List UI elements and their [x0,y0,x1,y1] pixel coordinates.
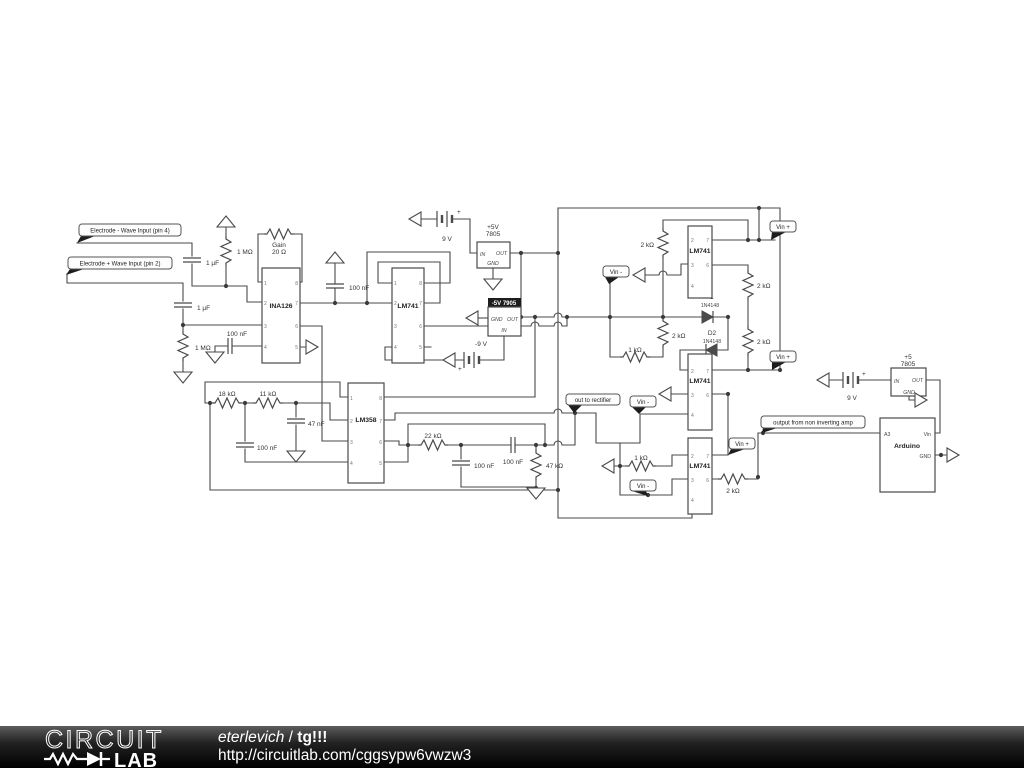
flag-label: output from non inverting amp [773,421,853,427]
pin-number: 4 [394,345,397,351]
lm741-ic-4[interactable]: LM741 2 7 3 6 4 [688,438,712,514]
value-label: 9 V [442,236,452,243]
pin-number: 2 [691,369,694,375]
cap-100nf-supply[interactable]: 100 nF [326,252,369,292]
terminal-arrow-icon [306,340,318,354]
ground-icon [206,352,224,363]
lm741-ic-3[interactable]: LM741 2 7 3 6 4 [688,354,712,430]
value-label: 1 kΩ [634,455,648,462]
pin-number: 6 [706,263,709,269]
ic-name: LM741 [689,248,710,255]
gnd-pin-label: GND [903,390,915,396]
value-label: 2 kΩ [757,283,771,290]
credit-separator: / [289,729,293,746]
flag-electrode-minus[interactable]: Electrode - Wave Input (pin 4) [77,224,181,243]
project-title[interactable]: tg!!! [297,729,327,746]
out-pin-label: OUT [912,378,924,384]
ground-icon [174,372,192,383]
cap-100nf-series[interactable]: 100 nF [503,437,523,466]
terminal-arrow-icon [633,268,645,282]
pin-number: 8 [419,281,422,287]
out-pin-label: OUT [496,251,508,257]
pin-number: 7 [295,301,298,307]
value-label: 47 kΩ [546,463,563,470]
pin-number: 7 [706,238,709,244]
logo-text-lab: LAB [114,750,158,768]
pin-number: 3 [691,393,694,399]
footer-bar: CIRCUIT LAB eterlevich / tg!!! http://ci… [0,726,1024,768]
value-label: 100 nF [503,459,523,466]
pin-number: 4 [691,498,694,504]
flag-vin-minus-3[interactable]: Vin - [630,480,656,496]
terminal-arrow-icon [409,212,421,226]
resistor-1k-a[interactable]: 1 kΩ [620,347,650,362]
pin-number: 1 [350,396,353,402]
plus-label: + [457,209,461,216]
project-url[interactable]: http://circuitlab.com/cggsypw6vwzw3 [218,747,471,765]
flag-label: Electrode + Wave Input (pin 2) [80,262,161,268]
logo-resistor-diode-icon [44,752,110,766]
pin-number: 1 [264,281,267,287]
circuitlab-page: 1 MΩ 1 µF 1 µF 1 MΩ 100 nF Gain 20 Ω 100… [0,0,1024,768]
schematic-canvas[interactable]: 1 MΩ 1 µF 1 µF 1 MΩ 100 nF Gain 20 Ω 100… [0,0,1024,726]
cap-100nf-bias[interactable]: 100 nF [236,443,277,452]
pin-number: 2 [394,301,397,307]
regulator-7905[interactable]: -5V 7905 GND OUT IN [466,298,521,336]
flag-output-noninverting[interactable]: output from non inverting amp [761,416,865,433]
resistor-2k-e[interactable]: 2 kΩ [658,318,686,348]
plus-label: + [862,371,866,378]
pin-number: 3 [350,440,353,446]
reg-title: -5V 7905 [492,301,517,307]
value-label: 2 kΩ [757,339,771,346]
ic-name: INA126 [269,303,292,310]
flag-label: Vin + [776,355,790,361]
ref-label: D2 [708,330,717,337]
pin-number: 7 [706,369,709,375]
pin-number: 2 [350,419,353,425]
part-label: 1N4148 [703,339,721,345]
pin-number: 4 [350,461,353,467]
pin-number: 4 [691,284,694,290]
pin-number: 6 [295,324,298,330]
lm741-ic-2[interactable]: LM741 2 7 3 6 4 [688,226,712,298]
terminal-arrow-icon [466,311,478,325]
value-label: 47 nF [308,421,325,428]
cap-1uf-b[interactable]: 1 µF [174,303,210,312]
resistor-1meg-a[interactable]: 1 MΩ [217,216,253,266]
ic-name: LM741 [689,378,710,385]
value-label: 1 MΩ [195,345,211,352]
value-label: 22 kΩ [424,433,441,440]
reg-title: +5V [487,224,499,231]
value-label: 2 kΩ [640,242,654,249]
value-label: 2 kΩ [672,333,686,340]
flag-out-to-rectifier[interactable]: out to rectifier [566,394,620,413]
pin-number: 5 [295,345,298,351]
terminal-arrow-icon [659,387,671,401]
flag-label: Vin - [637,400,649,406]
value-label: 1 µF [197,305,210,312]
terminal-arrow-icon [602,459,614,473]
pin-number: 8 [295,281,298,287]
flag-electrode-plus[interactable]: Electrode + Wave Input (pin 2) [66,257,172,275]
ground-arrow-icon [947,448,959,462]
resistor-1meg-b[interactable]: 1 MΩ [174,331,211,383]
pin-number: 7 [379,419,382,425]
resistor-22k[interactable]: 22 kΩ [418,433,448,450]
vcc-arrow-icon [217,216,235,227]
pin-number: 1 [394,281,397,287]
ina126-ic[interactable]: INA126 1 2 3 4 8 7 6 5 [262,268,318,363]
in-pin-label: IN [894,379,899,385]
lm741-ic-1[interactable]: LM741 1 2 3 4 8 7 6 5 [392,268,424,363]
cap-100nf-input[interactable]: 100 nF [206,331,247,363]
pin-number: 4 [691,413,694,419]
regulator-7805[interactable]: +5V 7805 IN OUT GND [477,224,510,290]
pin-label-vin: Vin [924,432,932,438]
in-pin-label: IN [480,252,485,258]
value-label: Gain [272,242,286,249]
resistor-2k-b[interactable]: 2 kΩ [743,270,771,300]
value-label: 2 kΩ [726,488,740,495]
ic-name: LM358 [355,417,376,424]
pin-number: 6 [379,440,382,446]
ground-icon [484,279,502,290]
pin-number: 6 [706,478,709,484]
pin-number: 2 [691,454,694,460]
pin-number: 7 [419,301,422,307]
pin-number: 4 [264,345,267,351]
footer-credit: eterlevich / tg!!! http://circuitlab.com… [218,729,471,765]
value-label: 100 nF [227,331,247,338]
pin-number: 2 [264,301,267,307]
flag-label: Vin - [610,270,622,276]
pin-number: 6 [706,393,709,399]
reg-part: 7805 [901,361,916,368]
pin-number: 5 [419,345,422,351]
reg-part: 7805 [486,231,501,238]
resistor-2k-a[interactable]: 2 kΩ [640,228,668,258]
ic-name: Arduino [894,443,920,450]
resistor-18k[interactable]: 18 kΩ [212,391,242,408]
part-label: 1N4148 [701,303,719,309]
pin-number: 3 [394,324,397,330]
battery-9v-arduino[interactable]: + 9 V [817,371,866,402]
resistor-11k[interactable]: 11 kΩ [253,391,283,408]
vcc-arrow-icon [326,252,344,263]
circuitlab-logo[interactable]: CIRCUIT LAB [42,727,222,768]
resistor-2k-c[interactable]: 2 kΩ [743,326,771,356]
value-label: 1 kΩ [628,347,642,354]
flag-label: Vin + [735,442,749,448]
flag-vin-plus-2[interactable]: Vin + [770,351,796,370]
pin-number: 3 [691,478,694,484]
resistor-gain-20ohm[interactable]: Gain 20 Ω [264,229,294,256]
battery-9v-main[interactable]: + 9 V [409,209,461,243]
author-name[interactable]: eterlevich [218,729,284,746]
flag-vin-minus-1[interactable]: Vin - [603,266,629,284]
out-pin-label: OUT [507,317,519,323]
pin-number: 3 [264,324,267,330]
cap-47nf[interactable]: 47 nF [287,419,325,462]
ground-icon [527,488,545,499]
ground-icon [287,451,305,462]
terminal-arrow-icon [443,353,455,367]
gnd-pin-label: GND [487,261,499,267]
flag-vin-minus-2[interactable]: Vin - [630,396,656,414]
diode-d2-1n4148[interactable]: D2 1N4148 [703,330,721,356]
pin-number: 5 [379,461,382,467]
value-label: 100 nF [474,463,494,470]
plus-label: + [458,366,462,373]
ic-name: LM741 [397,303,418,310]
resistor-1k-b[interactable]: 1 kΩ [626,455,656,471]
reg-title: +5 [904,354,912,361]
flag-label: Vin - [637,484,649,490]
flag-label: Electrode - Wave Input (pin 4) [90,229,169,235]
value-label: 100 nF [349,285,369,292]
flag-vin-plus-3[interactable]: Vin + [728,438,755,455]
flag-vin-plus-1[interactable]: Vin + [770,221,796,240]
value-label: 9 V [847,395,857,402]
gnd-pin-label: GND [491,317,503,323]
value-label: 18 kΩ [218,391,235,398]
value-label2: 20 Ω [272,249,286,256]
pin-number: 2 [691,238,694,244]
cap-1uf-a[interactable]: 1 µF [183,258,219,267]
value-label: 11 kΩ [260,391,277,398]
pin-number: 8 [379,396,382,402]
flag-label: Vin + [776,225,790,231]
pin-number: 7 [706,454,709,460]
battery-neg9v[interactable]: + -9 V [443,341,488,373]
ic-name: LM741 [689,463,710,470]
pin-label-a3: A3 [884,432,890,438]
value-label: 1 MΩ [237,249,253,256]
value-label: 100 nF [257,445,277,452]
lm358-ic[interactable]: LM358 1 2 3 4 8 7 6 5 [348,383,384,483]
cap-100nf-shunt[interactable]: 100 nF [452,461,494,470]
pin-label-gnd: GND [919,454,931,460]
pin-number: 6 [419,324,422,330]
flag-label: out to rectifier [575,398,611,404]
terminal-arrow-icon [817,373,829,387]
value-label: 1 µF [206,260,219,267]
pin-number: 3 [691,263,694,269]
arduino-ic[interactable]: A3 Vin Arduino GND [880,418,959,492]
in-pin-label: IN [501,328,506,334]
value-label: -9 V [475,341,488,348]
resistor-2k-d[interactable]: 2 kΩ [718,474,748,495]
